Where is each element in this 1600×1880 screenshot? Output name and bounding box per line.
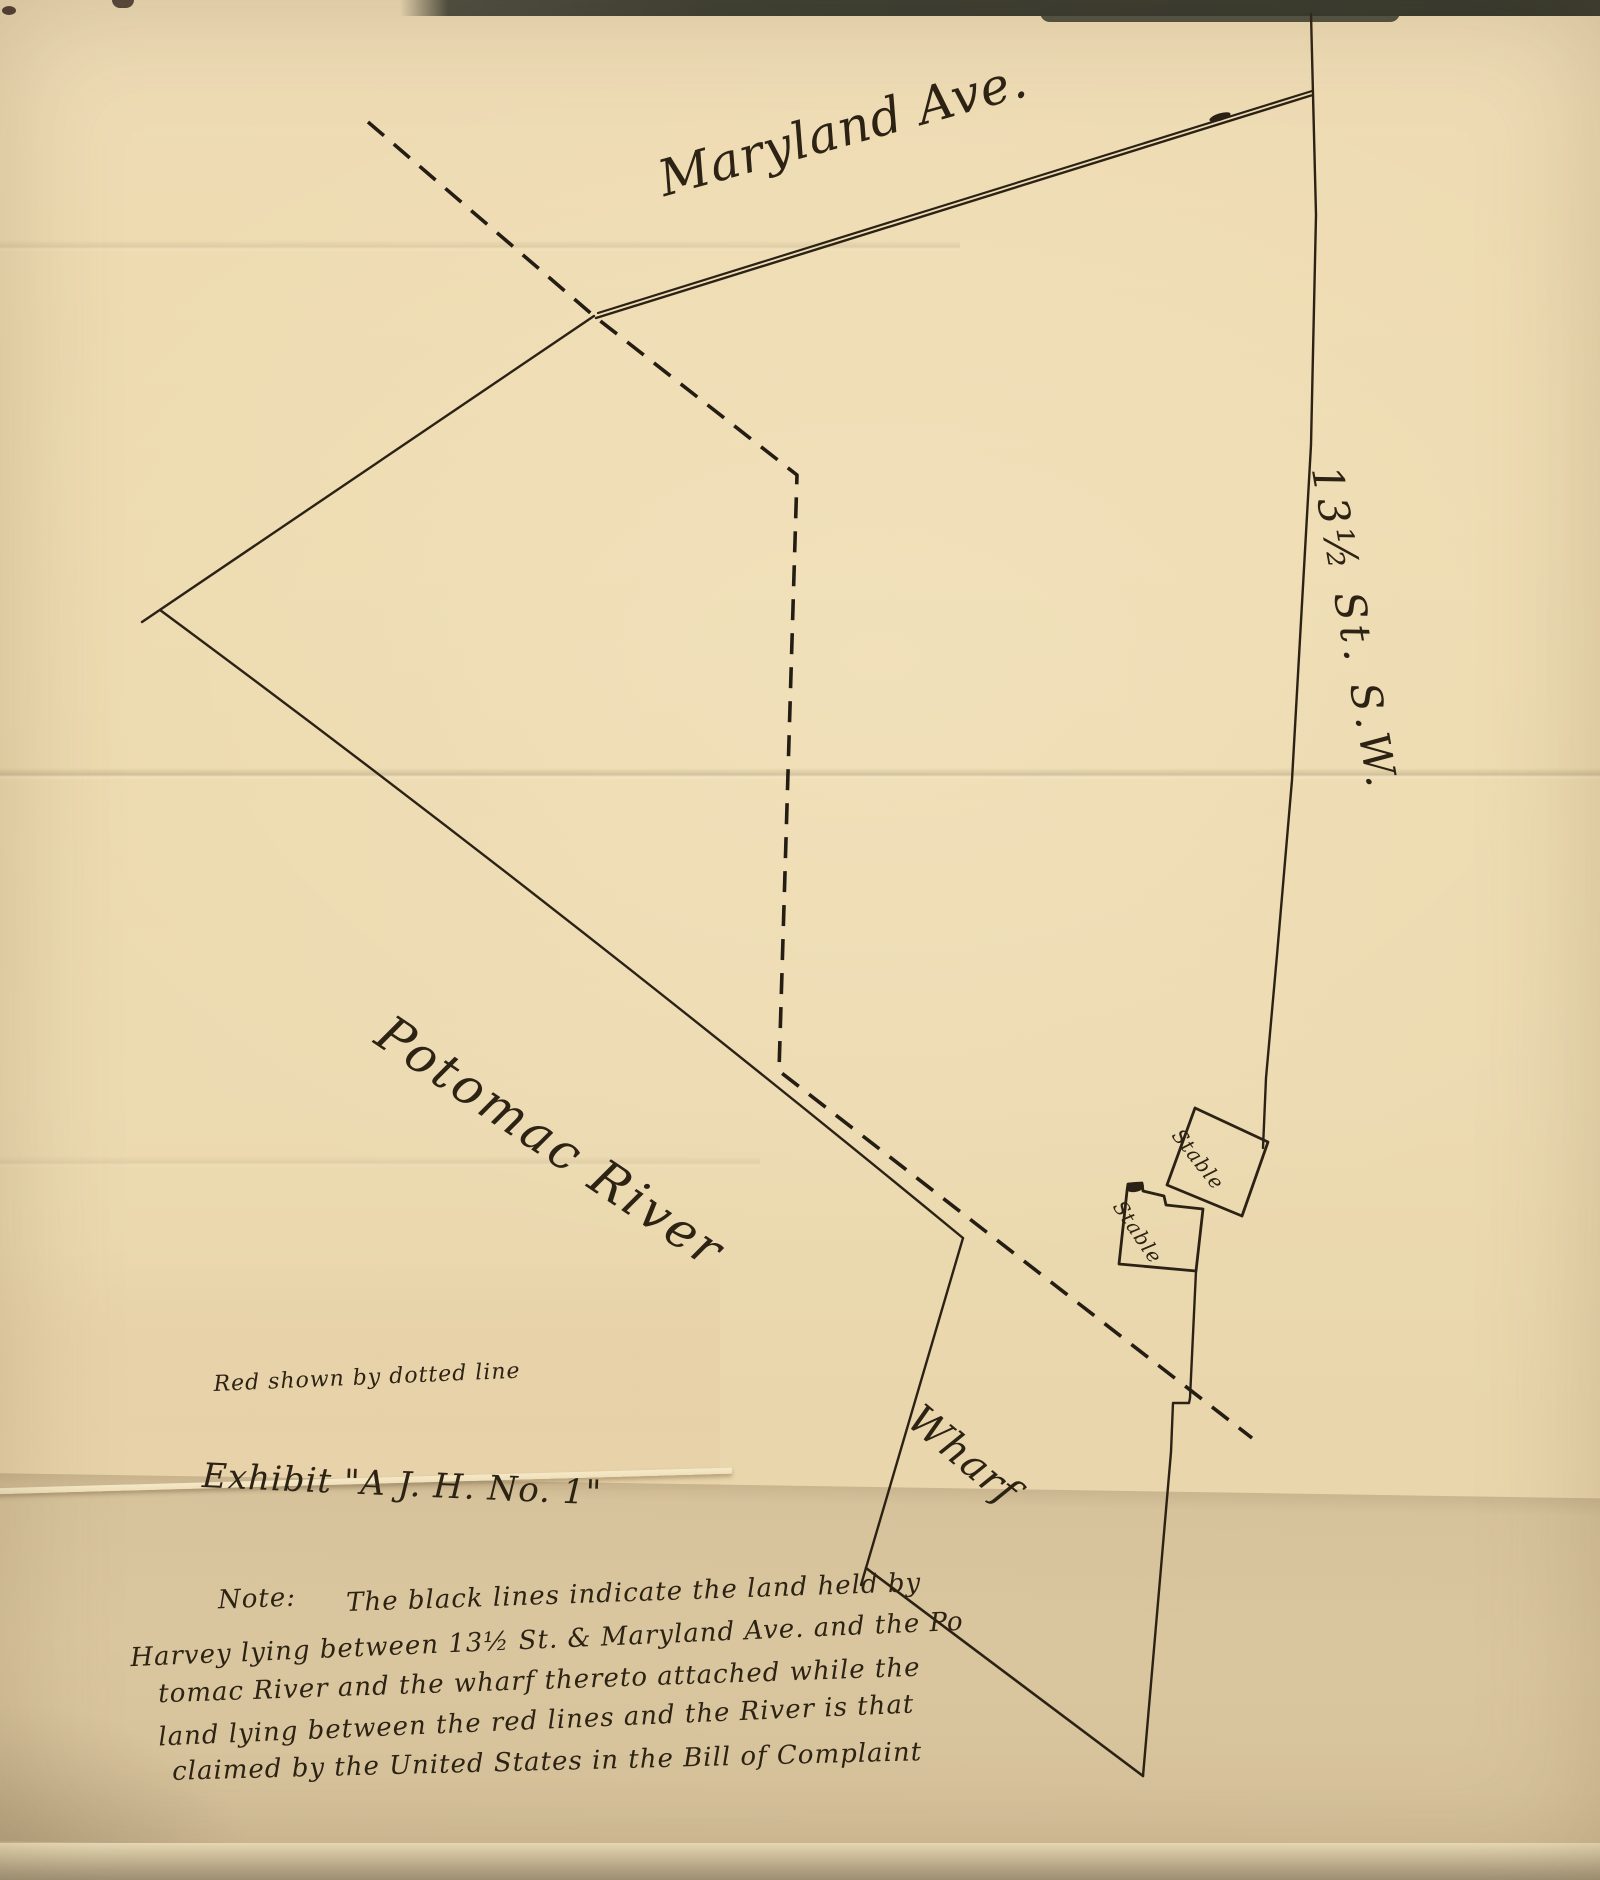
scanned-plat-document: Maryland Ave. 13½ St. S.W. Potomac River… xyxy=(0,0,1600,1880)
claim-dashed-line xyxy=(368,122,1252,1438)
note-heading: Note: xyxy=(218,1583,297,1616)
wharf-east-line xyxy=(1143,1271,1196,1776)
stable-upper-box xyxy=(1167,1108,1268,1216)
maryland-ave-line xyxy=(596,96,1311,319)
boundary-west-line xyxy=(142,316,594,622)
street-line xyxy=(1263,14,1316,1148)
wharf-west-line xyxy=(861,1238,963,1585)
